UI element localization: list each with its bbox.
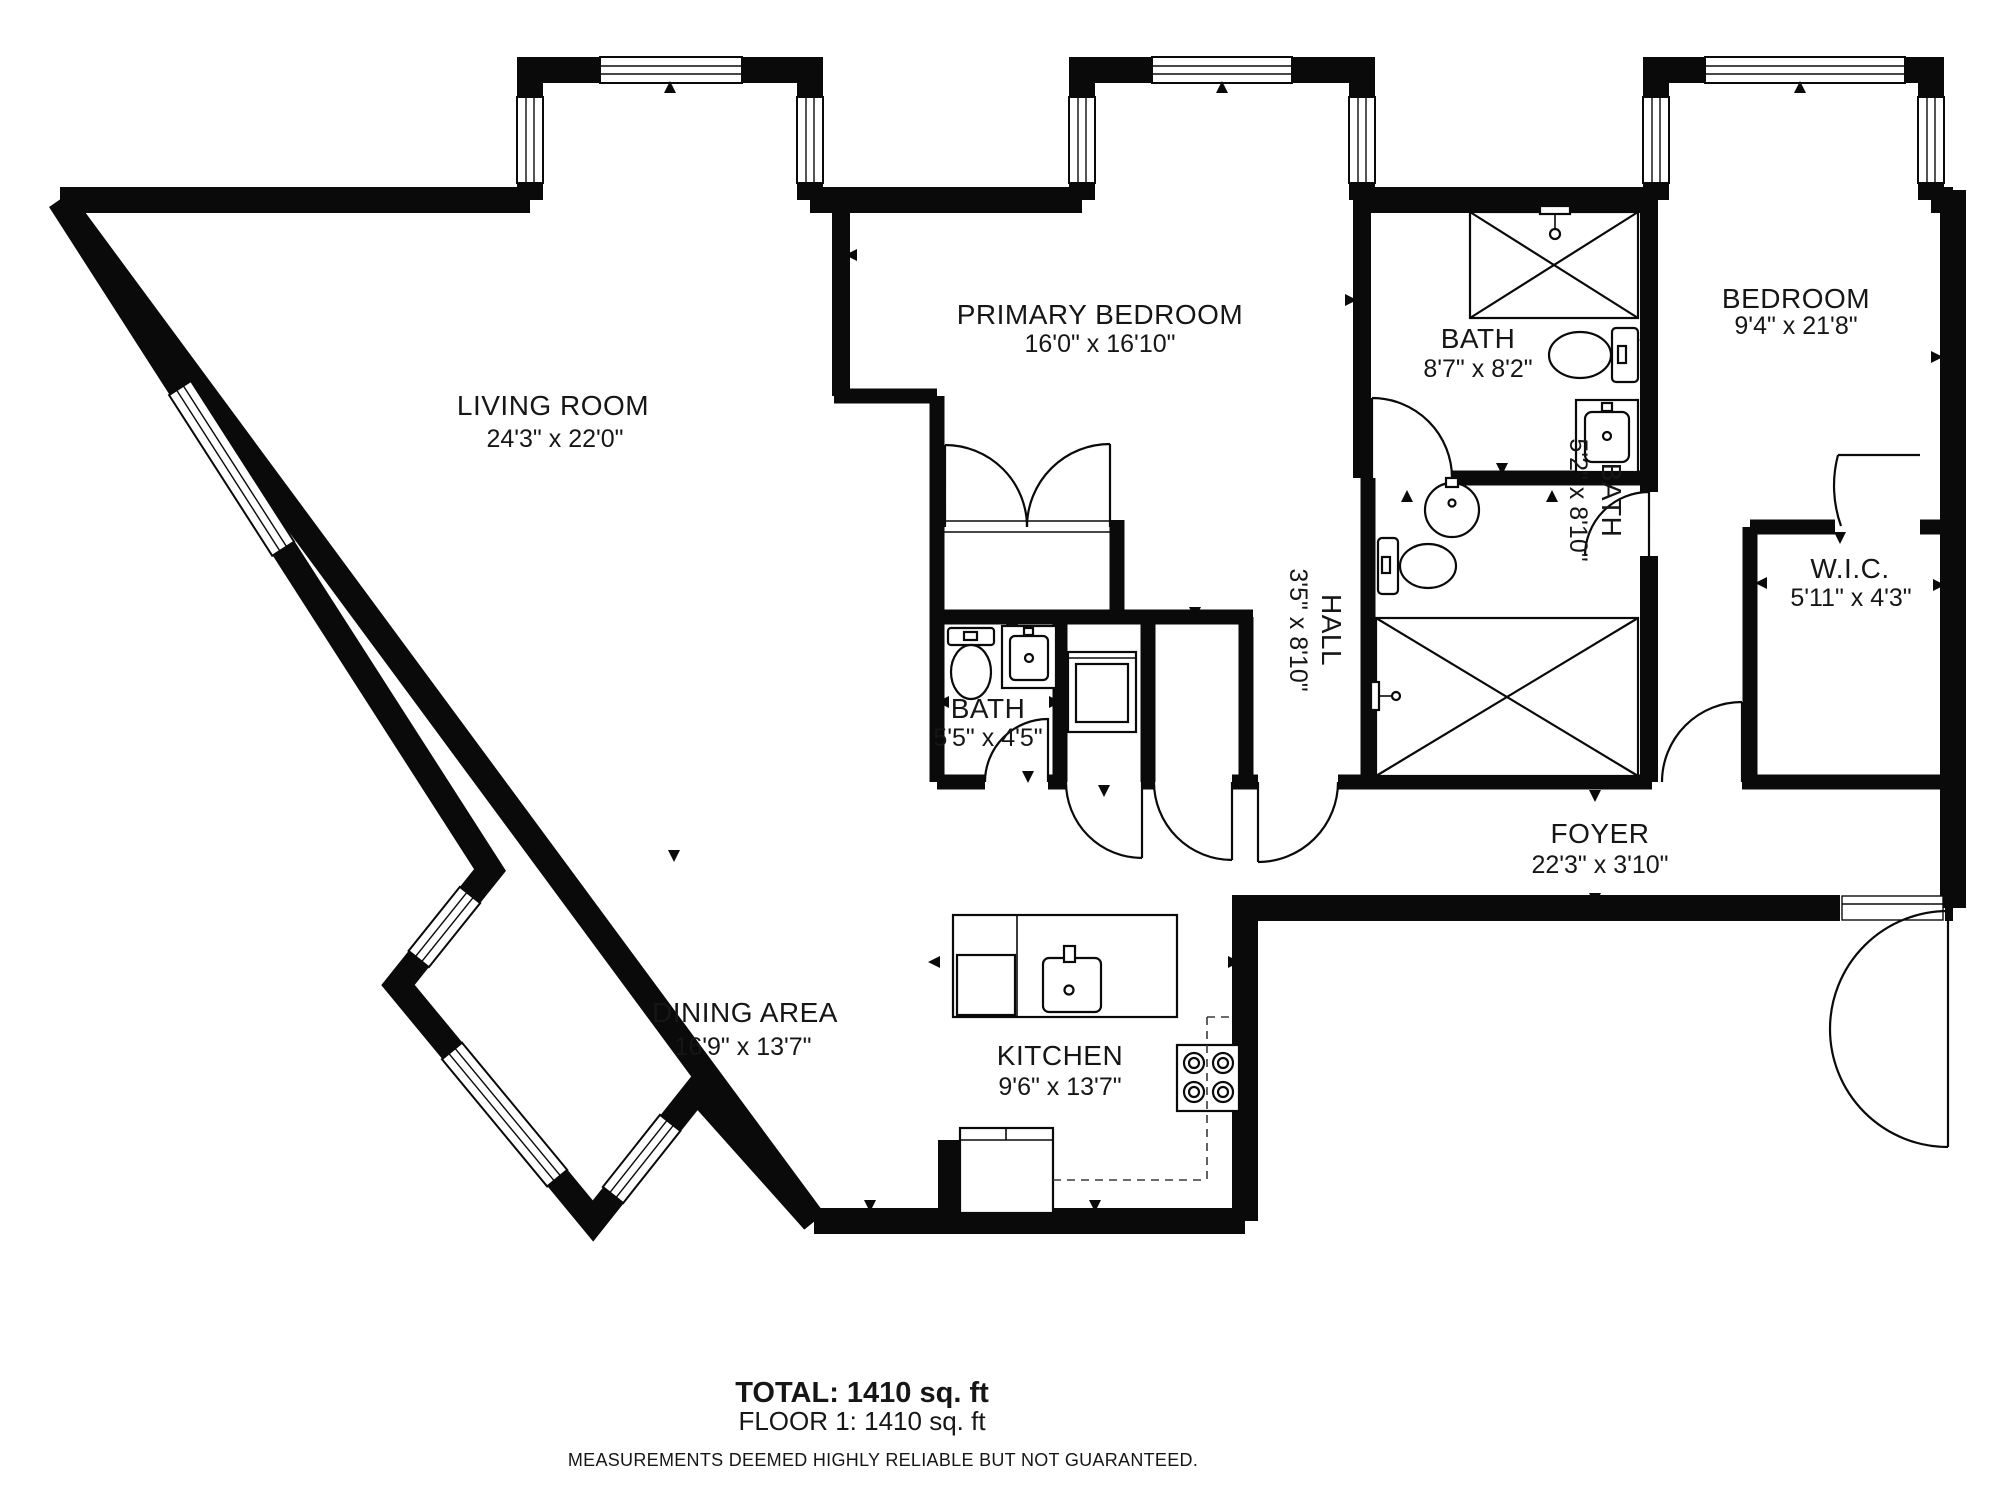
closet-double-doors <box>941 444 1113 532</box>
entry-door <box>1830 896 1948 1147</box>
shower-icon <box>1470 206 1638 318</box>
bath-small-fixtures <box>948 626 1056 699</box>
window-bay3-top <box>1705 57 1905 83</box>
label-dining-dims: 16'9" x 13'7" <box>674 1033 811 1061</box>
shower-icon <box>1371 618 1638 776</box>
toilet-icon <box>948 628 994 699</box>
label-primary-bedroom-name: PRIMARY BEDROOM <box>957 299 1244 330</box>
label-bath-mid-name: BATH <box>1596 463 1627 538</box>
cabinet-stub-wall <box>938 1140 960 1213</box>
toilet-icon <box>1378 538 1456 594</box>
label-dining-name: DINING AREA <box>652 997 838 1028</box>
label-hall-name: HALL <box>1316 594 1347 666</box>
bath-top-door <box>1372 398 1452 478</box>
window-bay1-top <box>600 57 742 83</box>
label-bedroom-dims: 9'4" x 21'8" <box>1734 312 1857 340</box>
room-labels: LIVING ROOM 24'3" x 22'0" PRIMARY BEDROO… <box>457 283 1912 1101</box>
label-living-room-name: LIVING ROOM <box>457 390 649 421</box>
summary-block: TOTAL: 1410 sq. ft FLOOR 1: 1410 sq. ft … <box>568 1377 1198 1470</box>
label-wic-dims: 5'11" x 4'3" <box>1790 584 1911 612</box>
disclaimer-text: MEASUREMENTS DEEMED HIGHLY RELIABLE BUT … <box>568 1450 1198 1470</box>
toilet-icon <box>1549 328 1638 382</box>
label-primary-bedroom-dims: 16'0" x 16'10" <box>1024 330 1175 358</box>
label-bath-small-name: BATH <box>951 693 1026 724</box>
label-hall-dims: 3'5" x 8'10" <box>1284 568 1312 691</box>
window-diagonal-3 <box>442 1043 567 1187</box>
floor-plan-page: LIVING ROOM 24'3" x 22'0" PRIMARY BEDROO… <box>0 0 2000 1500</box>
label-foyer-name: FOYER <box>1551 818 1650 849</box>
bedroom-door <box>1662 702 1742 782</box>
base-cabinets <box>938 1128 1053 1213</box>
window-diagonal-1 <box>169 381 294 556</box>
label-foyer-dims: 22'3" x 3'10" <box>1531 851 1668 879</box>
label-kitchen-dims: 9'6" x 13'7" <box>998 1073 1121 1101</box>
cooktop-icon <box>1177 1045 1239 1111</box>
storage-door-2 <box>1154 782 1232 860</box>
hall-door <box>1258 782 1338 862</box>
window-bay2-top <box>1152 57 1292 83</box>
window-diagonal-4 <box>603 1115 681 1203</box>
label-bedroom-name: BEDROOM <box>1722 283 1870 314</box>
label-living-room-dims: 24'3" x 22'0" <box>486 425 623 453</box>
total-area-text: TOTAL: 1410 sq. ft <box>735 1377 989 1409</box>
vanity-sink-icon <box>1002 626 1056 688</box>
floor-area-text: FLOOR 1: 1410 sq. ft <box>738 1406 986 1436</box>
washer-icon <box>1068 652 1136 732</box>
pedestal-sink-icon <box>1425 478 1479 537</box>
dishwasher-icon <box>957 955 1015 1015</box>
label-bath-top-name: BATH <box>1441 323 1516 354</box>
label-bath-mid-dims: 5'2" x 8'10" <box>1564 438 1592 561</box>
window-bay-sides <box>517 97 1944 183</box>
wic-door <box>1834 455 1920 526</box>
floor-plan-drawing: LIVING ROOM 24'3" x 22'0" PRIMARY BEDROO… <box>0 0 2000 1500</box>
label-kitchen-name: KITCHEN <box>997 1040 1123 1071</box>
window-diagonal-2 <box>409 887 481 967</box>
label-bath-small-dims: 5'5" x 4'5" <box>933 724 1042 752</box>
label-bath-top-dims: 8'7" x 8'2" <box>1423 355 1532 383</box>
label-wic-name: W.I.C. <box>1810 553 1889 584</box>
